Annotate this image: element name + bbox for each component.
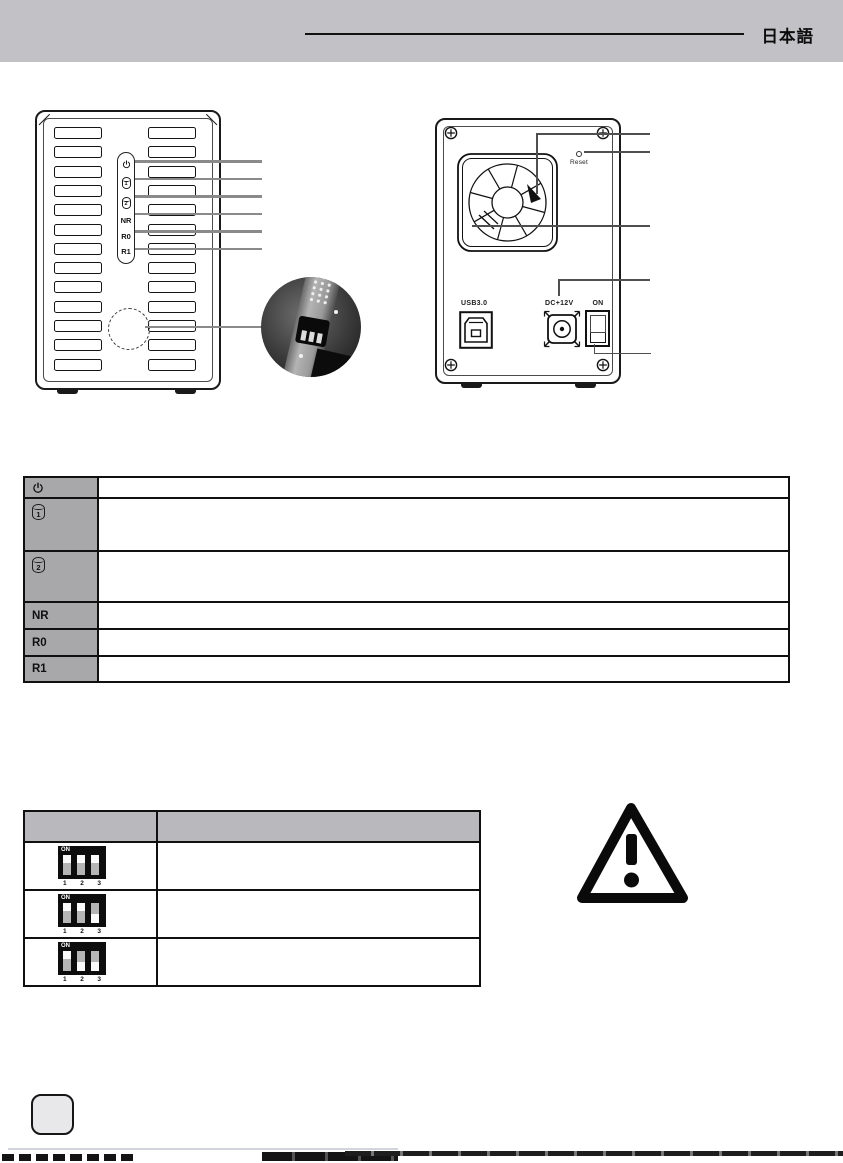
warning-triangle-icon <box>575 798 691 908</box>
table-header-row <box>25 812 479 843</box>
led-table: 1 2 NR R0 R1 <box>23 476 790 683</box>
row-label-cell: NR <box>25 603 99 628</box>
header-band <box>0 0 843 62</box>
dip-switch-graphic: ON 1 2 3 <box>58 942 106 983</box>
device-foot <box>575 383 596 388</box>
vent-slot <box>54 127 102 139</box>
power-icon <box>32 482 44 494</box>
dip-body: ON <box>58 846 106 879</box>
manual-page: 日本語 <box>0 0 843 1163</box>
device-foot <box>175 389 196 394</box>
led-label-r1: R1 <box>121 248 131 256</box>
leader-line <box>536 134 538 194</box>
dip-switch-graphic: ON 1 2 3 <box>58 894 106 935</box>
vent-slot <box>148 262 196 274</box>
row-label-cell: R0 <box>25 630 99 655</box>
vent-slot <box>54 146 102 158</box>
row-label-cell: ON 1 2 3 <box>25 843 158 889</box>
vent-slot <box>148 166 196 178</box>
vent-slot <box>54 224 102 236</box>
r0-label: R0 <box>32 637 47 649</box>
fan-grille <box>457 153 558 252</box>
photo-dip-switch <box>295 316 330 348</box>
leader-line <box>145 326 263 328</box>
device-foot <box>57 389 78 394</box>
row-desc-cell <box>99 657 788 681</box>
vent-slot <box>54 185 102 197</box>
leader-line <box>135 160 262 163</box>
nr-label: NR <box>32 610 49 622</box>
vent-slot <box>148 127 196 139</box>
screw-icon <box>444 358 458 372</box>
vent-slot <box>148 281 196 293</box>
screw-icon <box>444 126 458 140</box>
hdd1-icon: 1 <box>32 504 45 520</box>
leader-line <box>559 279 650 281</box>
dip-switch-2 <box>77 951 85 971</box>
vent-slot <box>148 339 196 351</box>
row-label-cell: ON 1 2 3 <box>25 891 158 937</box>
row-desc-cell <box>99 552 788 601</box>
hdd2-icon: 2 <box>122 197 131 209</box>
table-row: R1 <box>25 657 788 681</box>
vent-slot <box>54 320 102 332</box>
hdd2-icon: 2 <box>32 557 45 573</box>
vent-slot <box>148 146 196 158</box>
row-desc-cell <box>158 939 479 985</box>
leader-line <box>135 213 262 215</box>
power-switch <box>585 310 610 347</box>
screw-icon <box>596 358 610 372</box>
photo-dot <box>299 354 303 358</box>
leader-line <box>584 151 650 153</box>
dip-on-label: ON <box>61 847 70 853</box>
row-desc-cell <box>158 891 479 937</box>
dip-pin-numbers: 1 2 3 <box>58 879 106 887</box>
photo-dot <box>334 310 338 314</box>
dip-body: ON <box>58 894 106 927</box>
usb-label: USB3.0 <box>461 300 487 307</box>
table-row: NR <box>25 603 788 630</box>
vent-slot <box>148 301 196 313</box>
dip-switch-1 <box>63 951 71 971</box>
photo-shadow <box>310 348 361 377</box>
hdd1-icon: 1 <box>122 177 131 189</box>
vent-slot <box>54 204 102 216</box>
row-desc-cell <box>158 843 479 889</box>
hdd2-number: 2 <box>33 563 44 572</box>
table-row: ON 1 2 3 <box>25 891 479 939</box>
vent-slot <box>54 243 102 255</box>
dip-switch-1 <box>63 903 71 923</box>
table-row: ON 1 2 3 <box>25 939 479 985</box>
table-row: 2 <box>25 552 788 603</box>
leader-line <box>135 195 262 198</box>
dip-switch-graphic: ON 1 2 3 <box>58 846 106 887</box>
row-desc-cell <box>99 499 788 550</box>
dip-switch-3 <box>91 951 99 971</box>
vent-slot <box>54 262 102 274</box>
table-row: R0 <box>25 630 788 657</box>
table-row: ON 1 2 3 <box>25 843 479 891</box>
dip-on-label: ON <box>61 943 70 949</box>
vent-slot <box>54 339 102 351</box>
dc-label: DC+12V <box>545 300 573 307</box>
device-foot <box>461 383 482 388</box>
leader-line <box>135 178 262 180</box>
r1-label: R1 <box>32 663 47 675</box>
page-language-label: 日本語 <box>762 23 815 47</box>
row-label-cell: ON 1 2 3 <box>25 939 158 985</box>
dip-switch-photo <box>261 277 361 377</box>
dip-switch-table: ON 1 2 3 ON <box>23 810 481 987</box>
dip-switch-2 <box>77 903 85 923</box>
note-box <box>31 1094 74 1135</box>
leader-line <box>536 133 650 135</box>
leader-line <box>135 230 262 233</box>
row-desc-cell <box>99 603 788 628</box>
dip-switch-1 <box>63 855 71 875</box>
dip-on-label: ON <box>61 895 70 901</box>
print-artifact <box>345 1151 843 1156</box>
power-switch-rocker <box>590 315 606 333</box>
leader-line <box>594 353 651 355</box>
reset-label: Reset <box>565 159 593 166</box>
dc-power-jack <box>542 309 582 349</box>
table-row <box>25 478 788 499</box>
vent-slot <box>54 301 102 313</box>
print-artifact <box>8 1148 398 1150</box>
usb-b-port <box>459 311 493 349</box>
row-label-cell <box>25 478 99 497</box>
header-cell <box>158 812 479 841</box>
header-rule <box>305 33 744 35</box>
row-label-cell: 1 <box>25 499 99 550</box>
row-label-cell: R1 <box>25 657 99 681</box>
vent-slot <box>54 166 102 178</box>
row-label-cell: 2 <box>25 552 99 601</box>
row-desc-cell <box>99 478 788 497</box>
vent-slot <box>148 359 196 371</box>
power-icon <box>122 160 131 169</box>
reset-hole <box>576 151 582 157</box>
dip-switch-location-circle <box>108 308 150 350</box>
led-label-r0: R0 <box>121 233 131 241</box>
power-switch-label: ON <box>587 300 609 307</box>
dip-switch-2 <box>77 855 85 875</box>
row-desc-cell <box>99 630 788 655</box>
front-panel-diagram: 1 2 NR R0 R1 <box>35 110 221 390</box>
vent-slot <box>54 359 102 371</box>
led-indicator-pill: 1 2 NR R0 R1 <box>117 152 135 264</box>
hdd1-number: 1 <box>33 510 44 519</box>
header-cell <box>25 812 158 841</box>
leader-line <box>558 279 560 296</box>
hdd2-number: 2 <box>123 201 130 207</box>
dip-switch-3 <box>91 903 99 923</box>
dip-body: ON <box>58 942 106 975</box>
print-artifact <box>2 1154 133 1161</box>
leader-line <box>135 248 262 250</box>
table-row: 1 <box>25 499 788 552</box>
leader-line <box>472 225 650 227</box>
hdd1-number: 1 <box>123 181 130 187</box>
dip-switch-3 <box>91 855 99 875</box>
dip-pin-numbers: 1 2 3 <box>58 975 106 983</box>
led-label-nr: NR <box>121 217 132 225</box>
vent-slot <box>54 281 102 293</box>
dip-pin-numbers: 1 2 3 <box>58 927 106 935</box>
